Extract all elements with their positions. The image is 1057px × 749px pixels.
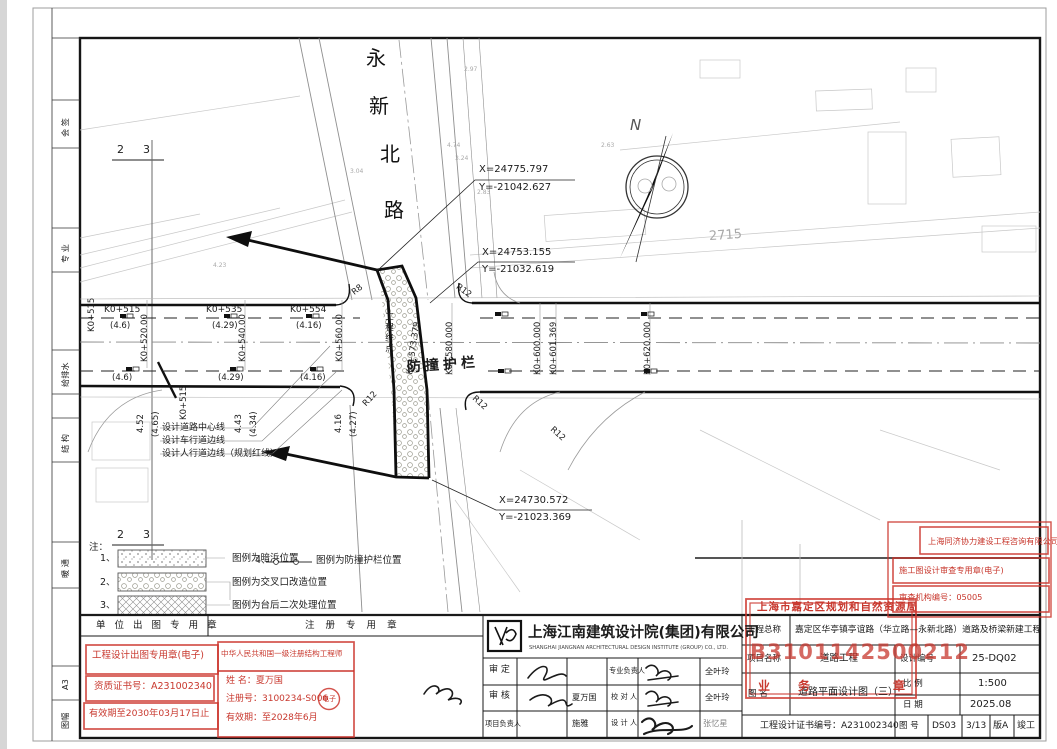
drawing-sheet: 永 新 北 路 X=24775.797 Y=-21042.627 X=24753… (0, 0, 1057, 749)
design-cert-line: 工程设计证书编号：A231002340 (760, 722, 899, 731)
project-lead-label: 项目负责人 (485, 720, 521, 727)
scale-value: 1:500 (978, 679, 1007, 689)
legend-label: 图例为防撞护栏位置 (316, 556, 402, 566)
station-label-rotated: K0+600.000 (534, 322, 543, 375)
coordinate-x: X=24775.797 (479, 165, 548, 175)
edge-elevation: 4.43 (235, 414, 244, 433)
offset-value: (4.29) (212, 322, 238, 331)
legend-no: 2、 (100, 578, 116, 588)
station-label-rotated: K0+540.00 (239, 314, 248, 362)
gov-stamp-number: B3101142500212 (750, 642, 970, 663)
station-label-rotated: K0+560.00 (336, 314, 345, 362)
phase: 竣工 (1017, 722, 1035, 731)
station-label-rotated: K0+601.369 (550, 322, 559, 375)
margin-label: 结 构 (61, 434, 69, 453)
legend-no: 3、 (100, 601, 116, 611)
north-label: N (630, 118, 641, 133)
spot-elevation: 3.04 (350, 169, 363, 175)
reg-stamp-header: 注 册 专 用 章 (305, 621, 401, 631)
station-tick (158, 362, 176, 398)
sheet-size-label: 图幅 (61, 713, 69, 729)
printed-name: 夏万国 (572, 693, 597, 701)
station-label: K0+554 (290, 306, 326, 315)
review-stamp-company: 上海同济协力建设工程咨询有限公司 (928, 537, 1057, 545)
station-label-rotated: K0+620.000 (644, 322, 653, 375)
review-stamp-line: 施工图设计审查专用章(电子) (899, 566, 1004, 574)
date-label: 日 期 (903, 701, 923, 710)
discipline-lead-label: 专业负责人 (609, 667, 645, 674)
project-end-label: 工程终点 (384, 312, 393, 354)
offset-value: (4.16) (300, 374, 326, 383)
road-name-char: 永 (366, 42, 386, 71)
legend-label: 图例为台后二次处理位置 (232, 601, 337, 611)
sheet-size: A3 (61, 679, 69, 690)
printed-name: 全叶玲 (705, 667, 730, 675)
margin-label: 专 业 (61, 244, 69, 263)
offset-value: (4.16) (296, 322, 322, 331)
station-label-rotated: K0+515 (180, 386, 189, 420)
fig-no: DS03 (932, 722, 956, 731)
project-general-name: 嘉定区华亭镇亭谊路（华立路—永新北路）道路及桥梁新建工程 (795, 626, 1041, 635)
coordinate-x: X=24753.155 (482, 248, 551, 258)
section-mark: 3 (143, 144, 150, 155)
sheet-index: 3/13 (966, 722, 986, 731)
checker-label: 校 对 人 (611, 693, 637, 700)
spot-elevation: 3.24 (455, 156, 468, 162)
road-name-char: 新 (369, 90, 389, 119)
edge-elevation: (4.65) (152, 411, 161, 437)
electronic-tag: 电子 (322, 696, 336, 703)
engineer-reg-no: 注册号：3100234-S006 (226, 695, 328, 704)
gov-seal-char: 务 (798, 680, 810, 692)
spot-elevation: 4.74 (447, 143, 460, 149)
edge-elevation: 4.16 (335, 414, 344, 433)
offset-value: (4.6) (110, 322, 130, 331)
handwritten-signatures (424, 665, 692, 734)
margin-label: 会 签 (61, 118, 69, 137)
edge-elevation: (4.34) (250, 411, 259, 437)
margin-label: 给排水 (61, 362, 69, 387)
design-stamp-line: 工程设计出图专用章(电子) (92, 651, 204, 661)
offset-value: (4.29) (218, 374, 244, 383)
coordinate-y: Y=-21032.619 (482, 265, 554, 275)
printed-name: 张忆星 (703, 719, 728, 727)
printed-name: 全叶玲 (705, 693, 730, 701)
section-mark: 2 (117, 529, 124, 540)
company-name-cn: 上海江南建筑设计院(集团)有限公司 (528, 626, 759, 641)
station-label-rotated: K0+520.00 (141, 314, 150, 362)
station-label: K0+535 (206, 306, 242, 315)
fig-no-label: 图 号 (899, 722, 919, 731)
section-mark: 3 (143, 529, 150, 540)
drawing-name: 道路平面设计图（三） (798, 688, 898, 698)
spot-elevation: 2.63 (601, 143, 614, 149)
centerline-label: 设计道路中心线 (162, 424, 225, 433)
engineer-validity: 有效期：至2028年6月 (226, 714, 318, 723)
boundary-arrow (226, 231, 252, 247)
offset-value: (4.6) (112, 374, 132, 383)
coordinate-x: X=24730.572 (499, 496, 568, 506)
spot-elevation: 2.83 (477, 190, 490, 196)
section-cut-line (112, 140, 164, 560)
margin-label: 暖 通 (61, 559, 69, 578)
sidewalk-edge-label: 设计人行道边线（规划红线） (162, 450, 279, 459)
parcel-number: 2715 (709, 228, 743, 243)
edge-elevation: 4.52 (137, 414, 146, 433)
design-stamp-cert-no: 资质证书号：A231002340 (94, 682, 212, 692)
legend-label: 图例为交叉口改造位置 (232, 578, 327, 588)
road-name-char: 路 (384, 194, 404, 223)
gov-seal-char: 业 (758, 680, 770, 692)
gov-stamp-agency: 上海市嘉定区规划和自然资源局 (757, 602, 918, 613)
project-general-label: 工程总称 (747, 626, 781, 635)
review-stamp-no: 审查机构编号：05005 (899, 593, 982, 601)
spot-elevation: 2.97 (464, 67, 477, 73)
section-mark: 2 (117, 144, 124, 155)
legend-no: 1、 (100, 554, 116, 564)
revision: 版A (993, 722, 1008, 731)
legend-no: 4、 (255, 556, 271, 566)
legend-note: 注： (89, 543, 108, 553)
designer-label: 设 计 人 (611, 719, 637, 726)
printed-name: 施雅 (572, 719, 588, 727)
road-name-char: 北 (380, 138, 400, 167)
engineer-stamp-title: 中华人民共和国一级注册结构工程师 (221, 650, 343, 658)
company-name-en: SHANGHAI JIANGNAN ARCHITECTURAL DESIGN I… (529, 646, 728, 651)
review-label: 审 核 (489, 692, 510, 701)
engineer-name: 姓 名：夏万国 (226, 677, 283, 686)
approve-label: 审 定 (489, 666, 510, 675)
gov-seal-char: 章 (893, 680, 905, 692)
lane-edge-label: 设计车行道边线 (162, 437, 225, 446)
coordinate-y: Y=-21023.369 (499, 513, 571, 523)
edge-elevation: (4.27) (350, 411, 359, 437)
station-label: K0+515 (104, 306, 140, 315)
date-value: 2025.08 (970, 700, 1011, 710)
station-label-rotated: K0+515 (88, 298, 97, 332)
unit-stamp-header: 单 位 出 图 专 用 章 (96, 621, 220, 631)
design-stamp-validity: 有效期至2030年03月17日止 (89, 709, 209, 718)
design-no: 25-DQ02 (972, 654, 1017, 664)
spot-elevation: 4.23 (213, 263, 226, 269)
company-logo (488, 621, 521, 651)
scale-label: 比 例 (903, 680, 923, 689)
